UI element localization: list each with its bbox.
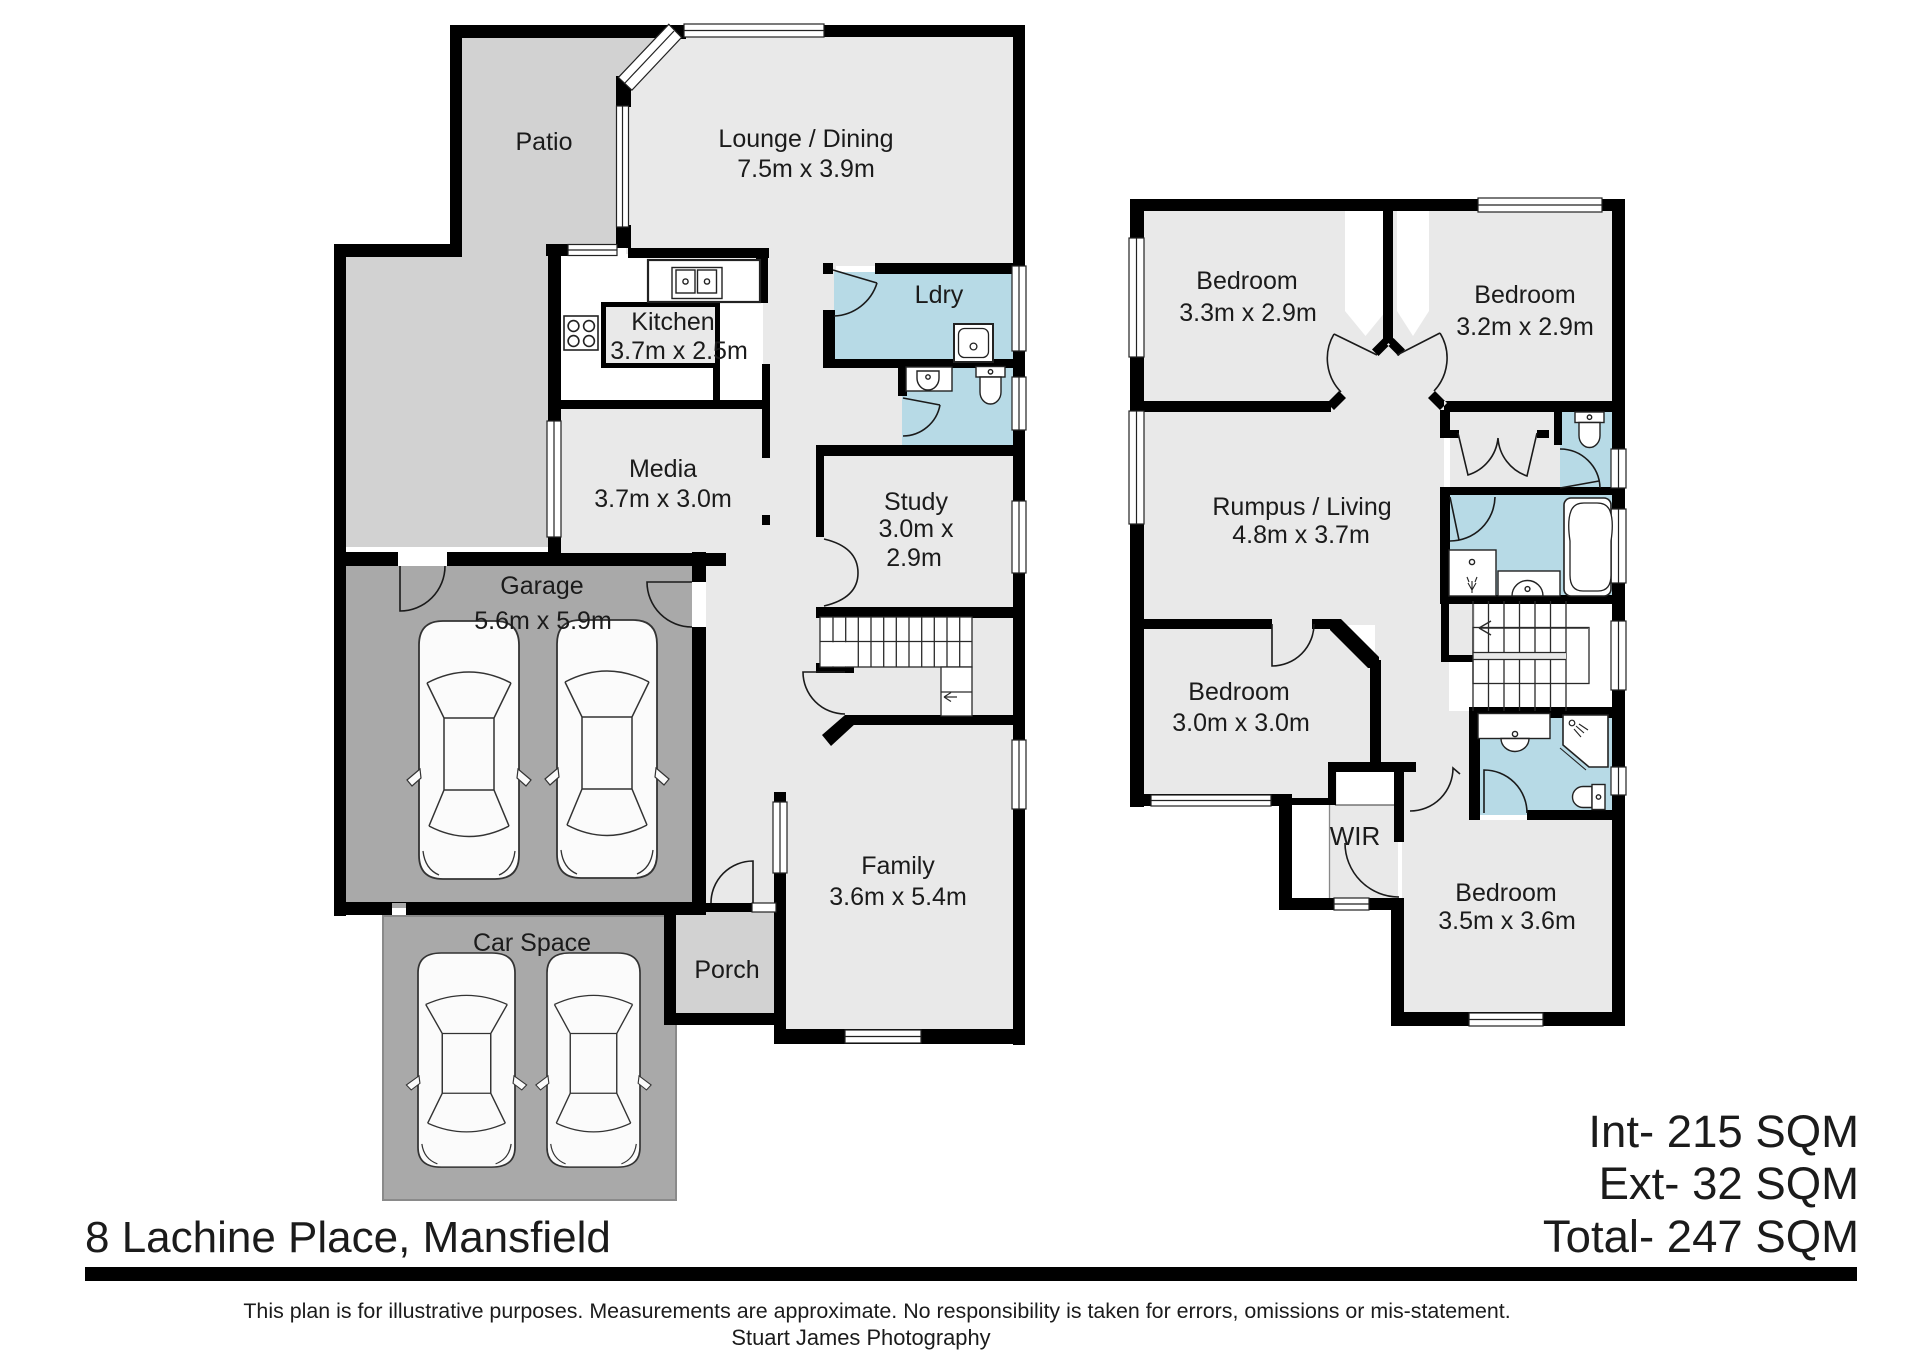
svg-text:3.0m x: 3.0m x <box>878 515 954 543</box>
svg-text:Patio: Patio <box>516 128 573 156</box>
svg-text:This plan is for illustrative: This plan is for illustrative purposes. … <box>243 1299 1510 1323</box>
svg-text:Bedroom: Bedroom <box>1188 678 1289 706</box>
svg-text:Study: Study <box>884 488 948 516</box>
svg-text:7.5m x 3.9m: 7.5m x 3.9m <box>737 155 875 183</box>
svg-text:Lounge / Dining: Lounge / Dining <box>718 125 893 153</box>
svg-text:Total- 247 SQM: Total- 247 SQM <box>1543 1211 1859 1262</box>
svg-text:2.9m: 2.9m <box>886 544 942 572</box>
svg-text:3.7m x 2.5m: 3.7m x 2.5m <box>610 337 748 365</box>
svg-text:Stuart James Photography: Stuart James Photography <box>731 1325 990 1350</box>
svg-text:3.6m x 5.4m: 3.6m x 5.4m <box>829 883 967 911</box>
svg-text:Ldry: Ldry <box>915 281 964 309</box>
svg-text:3.3m x 2.9m: 3.3m x 2.9m <box>1179 299 1317 327</box>
svg-text:Media: Media <box>629 455 697 483</box>
svg-text:Bedroom: Bedroom <box>1474 281 1575 309</box>
svg-text:Garage: Garage <box>500 572 583 600</box>
svg-text:Rumpus / Living: Rumpus / Living <box>1212 493 1391 521</box>
svg-text:3.7m x 3.0m: 3.7m x 3.0m <box>594 485 732 513</box>
svg-text:8 Lachine Place, Mansfield: 8 Lachine Place, Mansfield <box>85 1213 611 1262</box>
svg-text:3.2m x 2.9m: 3.2m x 2.9m <box>1456 313 1594 341</box>
svg-text:4.8m x 3.7m: 4.8m x 3.7m <box>1232 521 1370 549</box>
svg-text:3.5m x 3.6m: 3.5m x 3.6m <box>1438 907 1576 935</box>
svg-text:Family: Family <box>861 852 935 880</box>
svg-text:WIR: WIR <box>1330 821 1381 851</box>
svg-text:3.0m x 3.0m: 3.0m x 3.0m <box>1172 709 1310 737</box>
svg-text:Int- 215 SQM: Int- 215 SQM <box>1588 1106 1859 1157</box>
svg-text:Bedroom: Bedroom <box>1196 267 1297 295</box>
svg-text:Ext- 32 SQM: Ext- 32 SQM <box>1599 1158 1859 1209</box>
svg-text:Bedroom: Bedroom <box>1455 879 1556 907</box>
svg-text:Porch: Porch <box>694 956 759 984</box>
svg-text:Kitchen: Kitchen <box>631 308 714 336</box>
svg-text:Car Space: Car Space <box>473 929 591 957</box>
svg-text:5.6m x 5.9m: 5.6m x 5.9m <box>474 607 612 635</box>
